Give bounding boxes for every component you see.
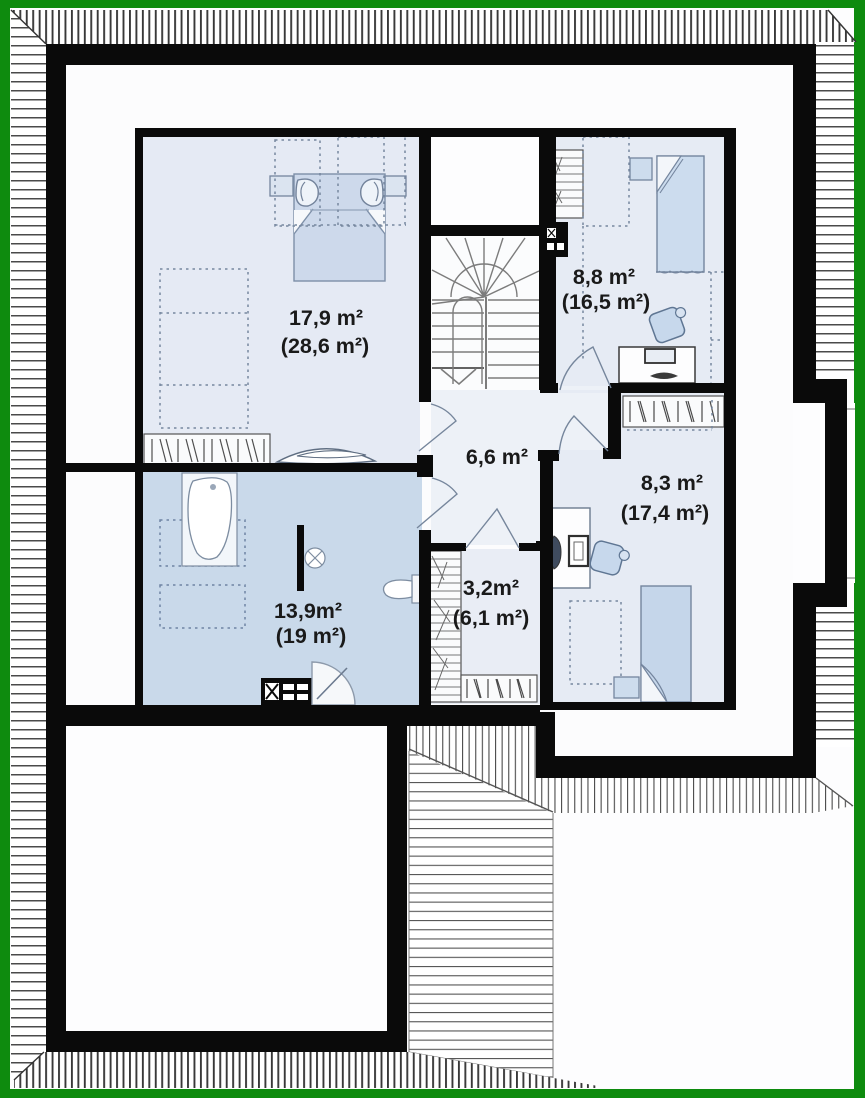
- svg-text:(17,4 m²): (17,4 m²): [621, 501, 709, 525]
- svg-text:(16,5 m²): (16,5 m²): [562, 290, 650, 314]
- svg-text:17,9 m²: 17,9 m²: [289, 306, 363, 330]
- svg-text:(6,1 m²): (6,1 m²): [453, 606, 529, 630]
- svg-text:(19 m²): (19 m²): [276, 624, 346, 648]
- svg-text:3,2m²: 3,2m²: [463, 576, 519, 600]
- svg-text:8,8 m²: 8,8 m²: [573, 265, 635, 289]
- svg-text:13,9m²: 13,9m²: [274, 599, 342, 623]
- svg-text:6,6 m²: 6,6 m²: [466, 445, 528, 469]
- svg-text:8,3 m²: 8,3 m²: [641, 471, 703, 495]
- svg-text:(28,6 m²): (28,6 m²): [281, 334, 369, 358]
